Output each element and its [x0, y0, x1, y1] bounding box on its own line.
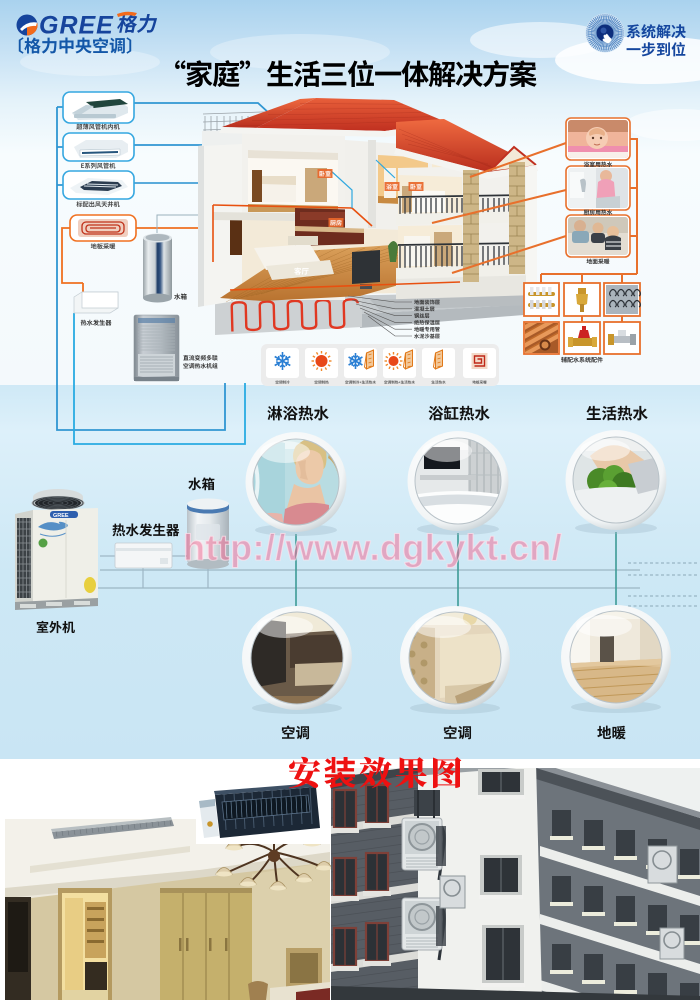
svg-text:http://www.dgkykt.cn/: http://www.dgkykt.cn/ [183, 527, 562, 568]
svg-text:GREE: GREE [53, 513, 69, 519]
svg-text:GREE: GREE [39, 12, 114, 40]
